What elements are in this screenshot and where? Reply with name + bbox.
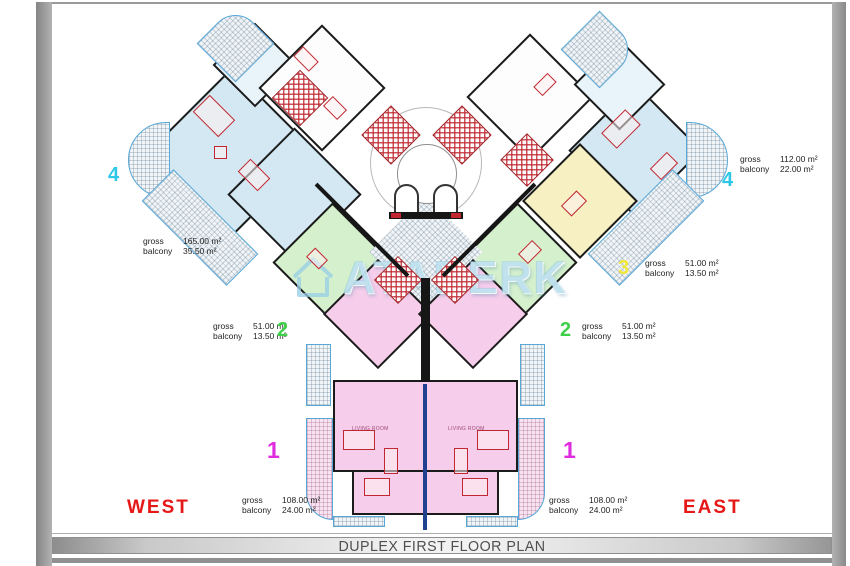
gross-value: 165.00 m² (183, 236, 221, 246)
unit-1-west-number: 1 (267, 440, 280, 460)
unit-4-west-number: 4 (108, 165, 119, 185)
frame-top-edge (36, 2, 846, 4)
balcony-value: 13.50 m² (622, 331, 656, 341)
furniture-sofa-unit1e (454, 448, 468, 474)
furniture-table-west (214, 146, 227, 159)
balcony-value: 24.00 m² (589, 505, 627, 515)
unit-1-east-bottom-balcony (466, 516, 518, 527)
balcony-value: 24.00 m² (282, 505, 320, 515)
unit-1-east-area-label: gross 108.00 m² balcony 24.00 m² (549, 495, 627, 515)
unit-1-west-area-label: gross 108.00 m² balcony 24.00 m² (242, 495, 320, 515)
unit-1-east-small-balcony (520, 344, 545, 406)
balcony-value: 35.50 m² (183, 246, 221, 256)
gross-value: 51.00 m² (685, 258, 719, 268)
frame-inner-hairline (52, 533, 832, 534)
gross-value: 108.00 m² (589, 495, 627, 505)
unit-1-west-bottom-balcony (333, 516, 385, 527)
center-axis-line (423, 384, 427, 530)
balcony-value: 13.50 m² (685, 268, 719, 278)
furniture-bed-unit1w (364, 478, 390, 496)
living-room-label-east: LIVING ROOM (448, 426, 485, 432)
unit-3-east-area-label: gross 51.00 m² balcony 13.50 m² (645, 258, 719, 278)
unit-2-west-number: 2 (277, 320, 288, 340)
unit-4-west-area-label: gross 165.00 m² balcony 35.50 m² (143, 236, 221, 256)
unit-3-east-number: 3 (618, 258, 629, 278)
elevator-east (433, 184, 458, 214)
gross-label: gross (143, 236, 179, 246)
elevator-west (394, 184, 419, 214)
core-wall-red-west (391, 213, 401, 218)
unit-1-east-number: 1 (563, 440, 576, 460)
direction-west-label: WEST (127, 497, 190, 519)
gross-label: gross (242, 495, 278, 505)
unit-1-east-side-balcony (518, 418, 545, 520)
frame-bottom-strip (52, 558, 832, 563)
balcony-label: balcony (549, 505, 585, 515)
gross-value: 112.00 m² (780, 154, 818, 164)
gross-value: 51.00 m² (622, 321, 656, 331)
title-bar: DUPLEX FIRST FLOOR PLAN (52, 537, 832, 554)
balcony-value: 22.00 m² (780, 164, 818, 174)
unit-4-east-area-label: gross 112.00 m² balcony 22.00 m² (740, 154, 818, 174)
balcony-label: balcony (645, 268, 681, 278)
unit-2-east-area-label: gross 51.00 m² balcony 13.50 m² (582, 321, 656, 341)
gross-value: 108.00 m² (282, 495, 320, 505)
balcony-label: balcony (213, 331, 249, 341)
plan-sheet: ATABERK LIVING ROOM LIVING ROOM 4 gross … (0, 0, 850, 566)
unit-1-west-small-balcony (306, 344, 331, 406)
furniture-dining-unit1e (477, 430, 509, 450)
balcony-label: balcony (143, 246, 179, 256)
gross-label: gross (645, 258, 681, 268)
gross-label: gross (740, 154, 776, 164)
furniture-dining-unit1w (343, 430, 375, 450)
balcony-label: balcony (242, 505, 278, 515)
unit-1-party-wall (421, 278, 430, 382)
core-wall-red-east (451, 213, 461, 218)
balcony-label: balcony (740, 164, 776, 174)
furniture-sofa-unit1w (384, 448, 398, 474)
direction-east-label: EAST (683, 497, 742, 519)
gross-label: gross (582, 321, 618, 331)
gross-label: gross (213, 321, 249, 331)
balcony-label: balcony (582, 331, 618, 341)
unit-2-west-area-label: gross 51.00 m² balcony 13.50 m² (213, 321, 287, 341)
frame-left-edge (36, 2, 52, 566)
unit-2-east-number: 2 (560, 320, 571, 340)
unit-4-east-number: 4 (722, 170, 733, 190)
plan-title: DUPLEX FIRST FLOOR PLAN (338, 539, 545, 554)
furniture-bed-unit1e (462, 478, 488, 496)
frame-right-edge (832, 2, 846, 566)
gross-label: gross (549, 495, 585, 505)
living-room-label-west: LIVING ROOM (352, 426, 389, 432)
